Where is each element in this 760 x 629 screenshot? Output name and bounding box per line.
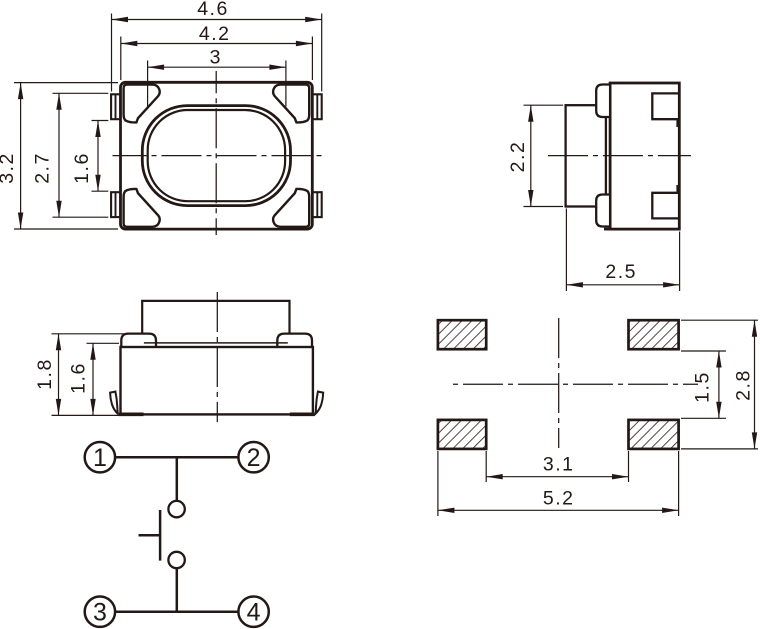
- svg-text:2.8: 2.8: [733, 369, 755, 401]
- svg-text:1.6: 1.6: [68, 362, 90, 394]
- svg-text:3: 3: [93, 599, 107, 627]
- svg-text:3.1: 3.1: [543, 454, 575, 476]
- svg-text:1.8: 1.8: [34, 358, 56, 390]
- svg-text:3.2: 3.2: [0, 152, 18, 184]
- svg-text:2: 2: [247, 444, 261, 472]
- svg-text:4.6: 4.6: [197, 0, 229, 20]
- svg-text:2.5: 2.5: [605, 261, 637, 283]
- svg-text:2.2: 2.2: [507, 141, 529, 173]
- svg-text:4.2: 4.2: [199, 23, 231, 45]
- svg-text:3: 3: [210, 46, 222, 68]
- svg-text:1: 1: [93, 444, 107, 472]
- svg-text:2.7: 2.7: [31, 152, 53, 184]
- svg-text:1.6: 1.6: [71, 152, 93, 184]
- svg-text:1.5: 1.5: [692, 371, 714, 403]
- svg-text:5.2: 5.2: [543, 488, 575, 510]
- svg-text:4: 4: [247, 599, 261, 627]
